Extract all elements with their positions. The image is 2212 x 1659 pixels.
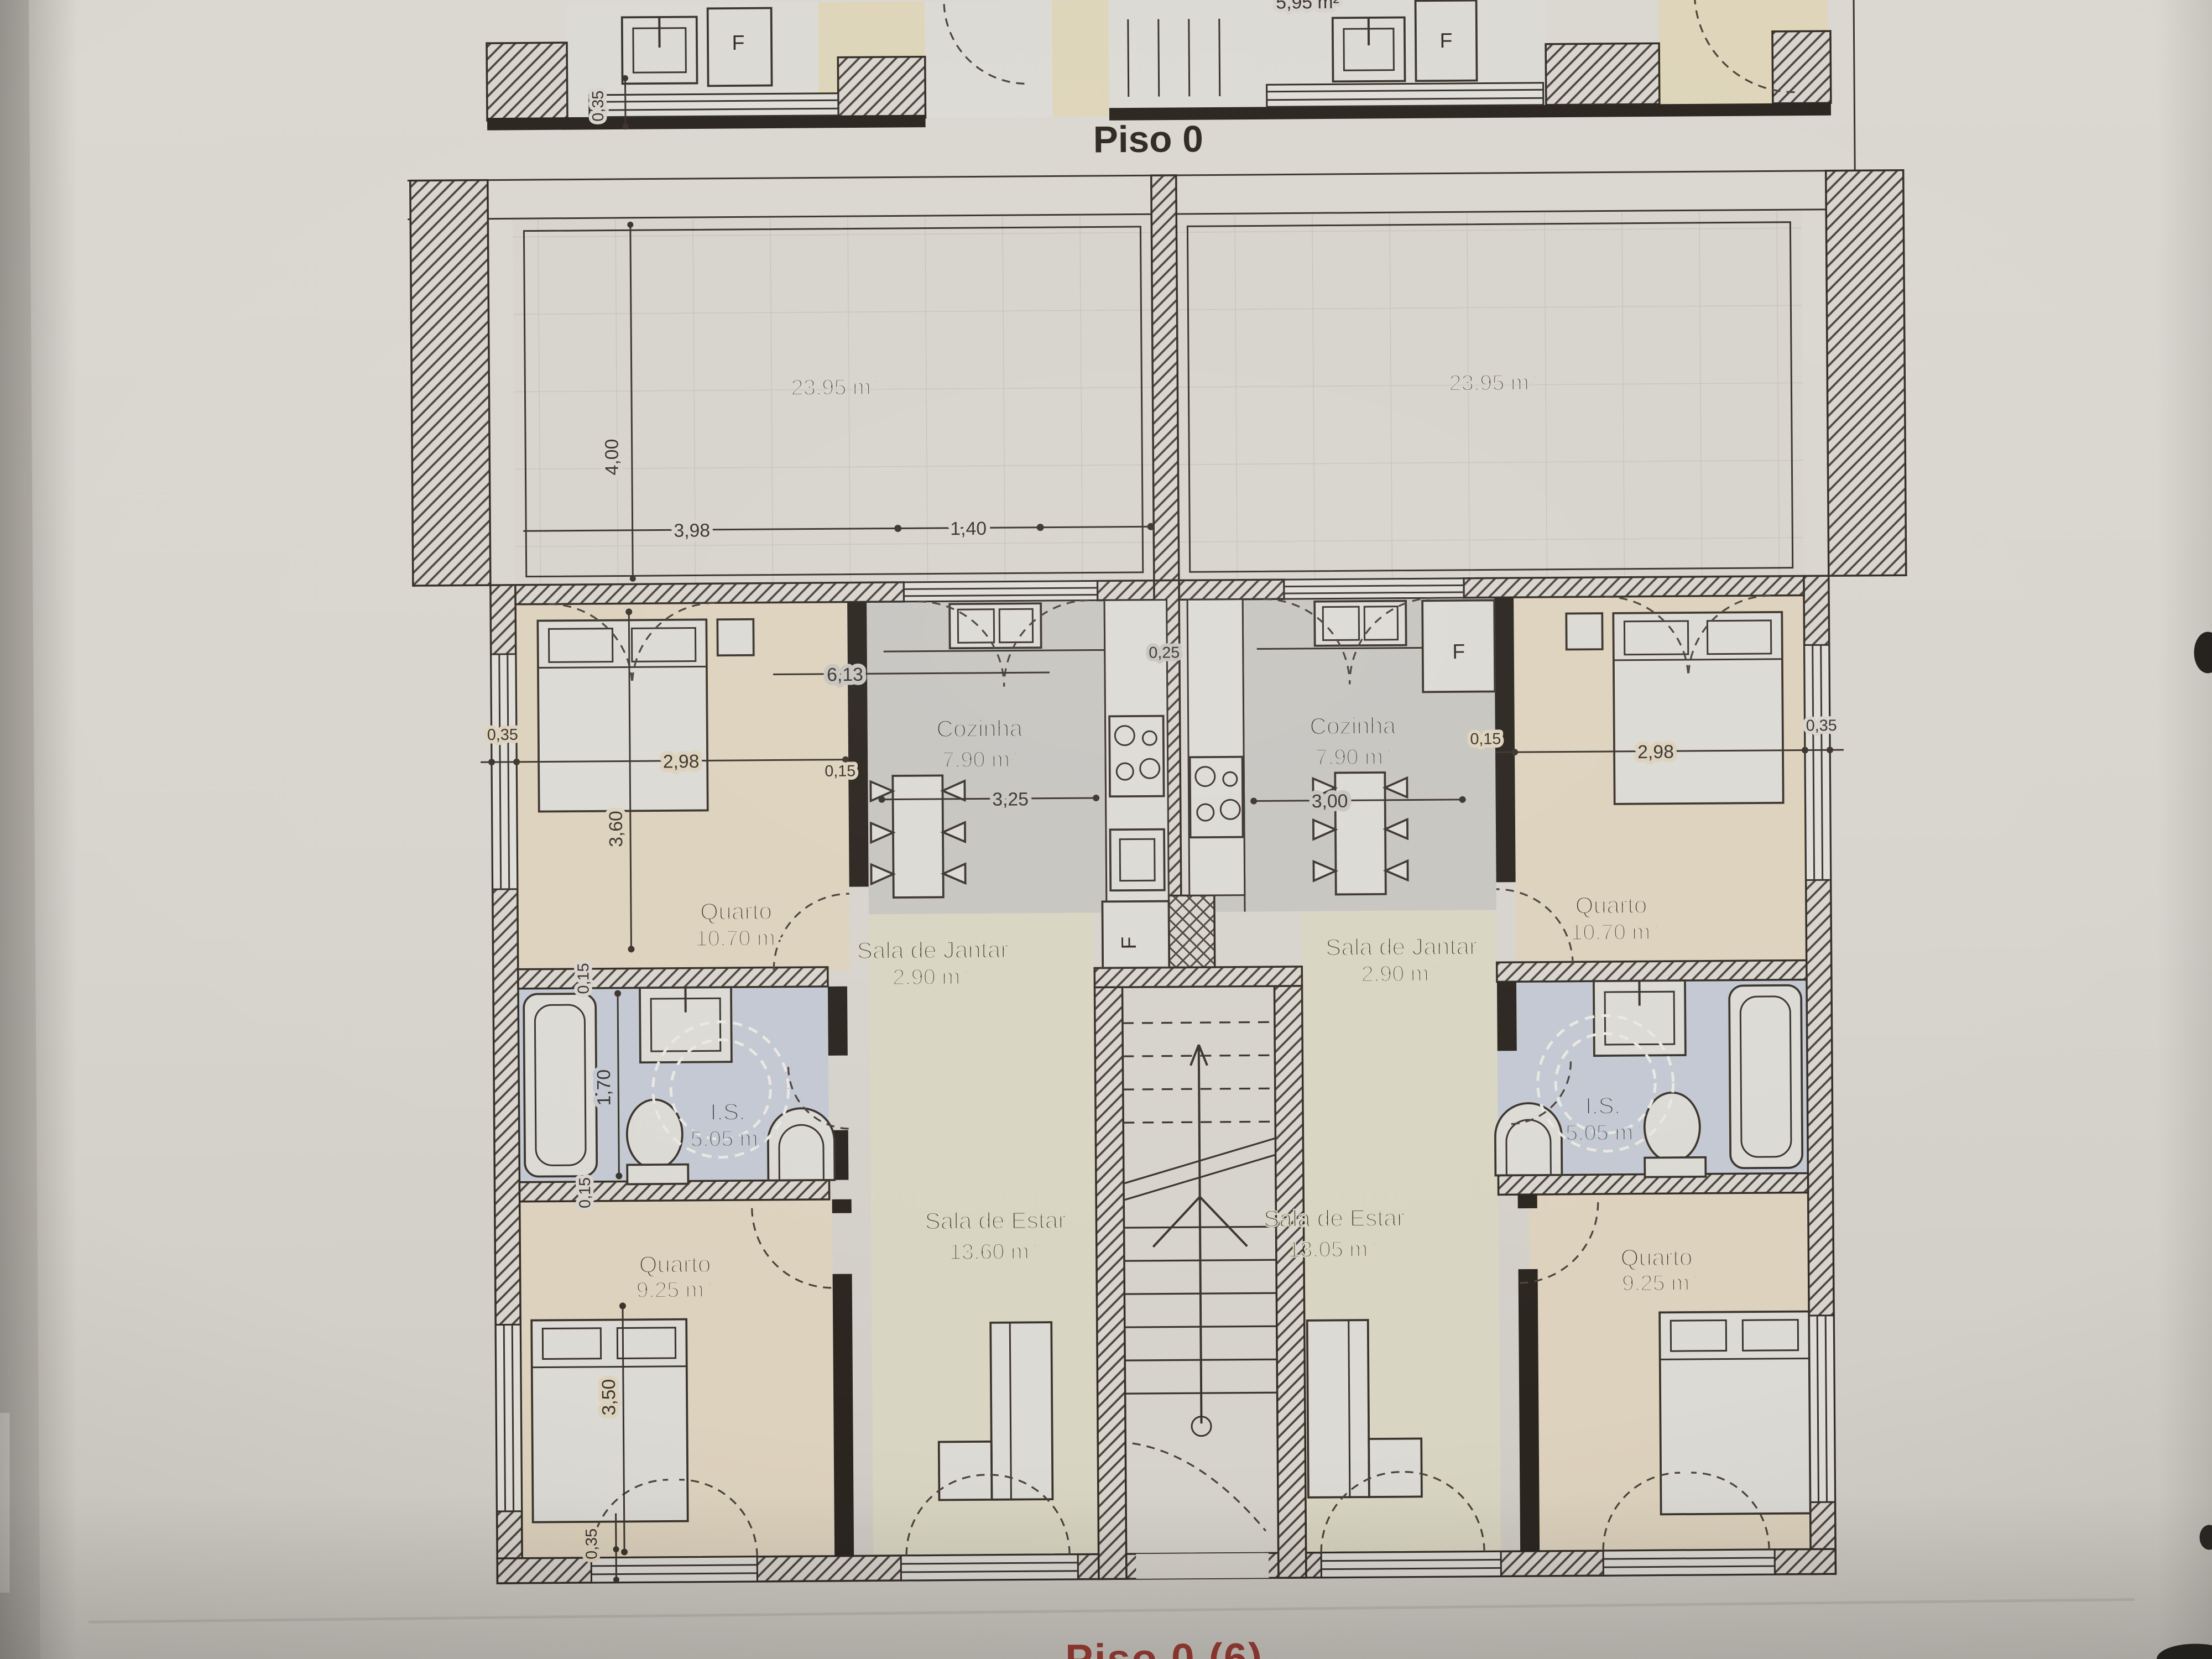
kitchen-left-area: 7,90 m²	[942, 747, 1018, 772]
upper-room	[925, 1, 1052, 118]
bathroom-left-name: I.S.	[710, 1099, 745, 1125]
terrace-right-floor	[1176, 211, 1804, 581]
sink-icon	[622, 17, 697, 84]
dim-right-bedroom-width: 2,98	[1637, 742, 1674, 763]
partial-area-label: 5,95 m²	[1276, 0, 1339, 13]
dining-right-name: Sala de Jantar	[1326, 934, 1477, 961]
dim-terrace-width: 3,98	[674, 520, 710, 541]
dim-left-bedroom2-depth: 3,50	[598, 1379, 619, 1416]
wall	[487, 43, 567, 121]
dining-left-area: 2,90 m²	[893, 965, 968, 990]
bathtub-icon	[524, 994, 597, 1177]
stair-wall-west	[1094, 987, 1126, 1579]
wall	[1519, 1269, 1540, 1551]
fridge-label-left: F	[1117, 936, 1140, 949]
kitchen-right-area: 7,90 m²	[1316, 745, 1391, 770]
dining-right-area: 2,90 m²	[1361, 962, 1436, 987]
bedroom2-right-area: 9,25 m²	[1622, 1271, 1697, 1296]
bed-icon	[1660, 1311, 1811, 1514]
dim-left-kitchen-width: 3,25	[992, 789, 1029, 810]
living-right-name: Sala de Estar	[1264, 1206, 1405, 1233]
kitchen-left-name: Cozinha	[936, 716, 1023, 742]
stair-wall-top	[1094, 967, 1302, 988]
duct	[1168, 895, 1214, 968]
bathtub-icon	[1729, 985, 1802, 1168]
next-plan-title: Piso 0 (6)	[1065, 1634, 1264, 1659]
bathroom-right-name: I.S.	[1585, 1093, 1620, 1119]
terrace-right-area: 23,95 m²	[1449, 371, 1536, 395]
cooktop-icon	[1109, 716, 1164, 797]
wall	[1497, 982, 1517, 1051]
fridge-label-right: F	[1452, 640, 1465, 663]
window	[1804, 645, 1831, 880]
wall	[1518, 1194, 1537, 1208]
bedroom2-right-name: Quarto	[1620, 1245, 1692, 1271]
floorplan-drawing: F F 0,35 5,95 m² Piso 0	[0, 0, 2212, 1659]
dim-right-wall: 0,35	[1806, 717, 1837, 734]
dim-left-wall: 0,35	[487, 726, 518, 744]
living-right-area: 13,05 m²	[1288, 1237, 1375, 1262]
terrace-left-area: 23,95 m²	[791, 375, 878, 400]
terrace-east-wall	[1826, 170, 1906, 576]
bath-wall	[1497, 961, 1807, 982]
stair-wall-east	[1274, 986, 1306, 1578]
wall	[832, 1199, 852, 1213]
window	[1267, 83, 1543, 107]
window	[904, 581, 1097, 601]
dim-center-wall: 0,25	[1149, 644, 1180, 661]
window	[1284, 578, 1464, 599]
bath-wall	[518, 967, 828, 989]
bathroom-left-area: 5,05 m²	[690, 1126, 765, 1151]
entry-porch-floor	[1125, 1462, 1278, 1554]
upper-gap	[1052, 0, 1109, 117]
living-left-area: 13,60 m²	[949, 1239, 1036, 1264]
terrace-court: 23,95 m² 23,95 m² 4,00 3,98 1,40	[408, 170, 1906, 586]
dim-left-total-width: 6,13	[827, 664, 863, 685]
paper-edge-sliver	[0, 1413, 10, 1593]
floorplan-photo: F F 0,35 5,95 m² Piso 0	[0, 0, 2212, 1659]
dim-bath-width: 1,70	[593, 1070, 614, 1106]
window	[1809, 1316, 1835, 1503]
wall	[838, 57, 925, 118]
dim-bath-wall-top: 0,15	[575, 963, 592, 994]
wall	[828, 987, 848, 1056]
bathroom-right-area: 5,05 m²	[1566, 1120, 1641, 1145]
bedroom2-left-area: 9,25 m²	[636, 1277, 711, 1302]
bidet-icon	[768, 1108, 835, 1181]
dim-left-interior-wall: 0,15	[825, 763, 855, 780]
window	[589, 93, 838, 117]
window	[1321, 1551, 1501, 1577]
entry-opening	[1136, 1553, 1269, 1579]
wall	[1772, 31, 1831, 103]
dim-right-interior-wall: 0,15	[1470, 730, 1501, 748]
north-wall	[1179, 580, 1284, 599]
washbasin-icon	[1594, 980, 1686, 1056]
dim-bath-wall-bottom: 0,15	[576, 1177, 594, 1208]
kitchen-right-name: Cozinha	[1310, 713, 1396, 740]
bedroom1-left-area: 10,70 m²	[695, 926, 782, 951]
living-left-name: Sala de Estar	[925, 1208, 1066, 1235]
dim-terrace-offset: 1,40	[950, 518, 987, 539]
north-wall	[515, 582, 904, 604]
dim-right-kitchen-width: 3,00	[1312, 791, 1348, 812]
terrace-west-wall	[410, 180, 491, 586]
north-wall	[1097, 581, 1154, 601]
window	[901, 1554, 1078, 1580]
bedroom1-left-name: Quarto	[700, 899, 772, 925]
bidet-icon	[1495, 1103, 1562, 1176]
upper-fridge-label-right: F	[1439, 29, 1452, 52]
fridge-box: F	[1102, 901, 1169, 968]
drawing-sheet: F F 0,35 5,95 m² Piso 0	[29, 0, 2212, 1659]
cooktop-icon	[1190, 757, 1243, 838]
dim-left-bedroom-width: 2,98	[663, 751, 700, 772]
window	[1603, 1550, 1775, 1575]
upper-fridge-label-left: F	[732, 31, 744, 54]
bed-icon	[531, 1319, 688, 1522]
wall	[1546, 43, 1660, 105]
north-wall	[1464, 576, 1804, 598]
wall	[833, 1274, 854, 1556]
dim-left-bedroom-depth: 3,60	[606, 811, 627, 847]
wall	[847, 602, 869, 886]
terrace-center-wall	[1151, 175, 1179, 581]
dimension-line	[625, 75, 625, 129]
sink-icon	[1333, 18, 1405, 82]
fridge-box: F	[1422, 600, 1495, 692]
sink-icon	[950, 603, 1041, 648]
bedroom1-right-area: 10,70 m²	[1571, 920, 1658, 945]
dim-bottom-wall: 0,35	[583, 1528, 601, 1559]
washbasin-icon	[640, 987, 732, 1062]
plan-title: Piso 0	[1093, 118, 1203, 160]
dim-strip-wall: 0,35	[589, 91, 607, 122]
bedroom2-left-name: Quarto	[639, 1251, 711, 1278]
window	[491, 654, 518, 889]
bedroom1-right-name: Quarto	[1575, 893, 1647, 919]
window	[495, 1324, 521, 1511]
dining-left-name: Sala de Jantar	[857, 937, 1008, 964]
sink-icon	[1314, 601, 1406, 646]
oven-icon	[1110, 830, 1165, 891]
dim-terrace-depth: 4,00	[602, 439, 623, 476]
